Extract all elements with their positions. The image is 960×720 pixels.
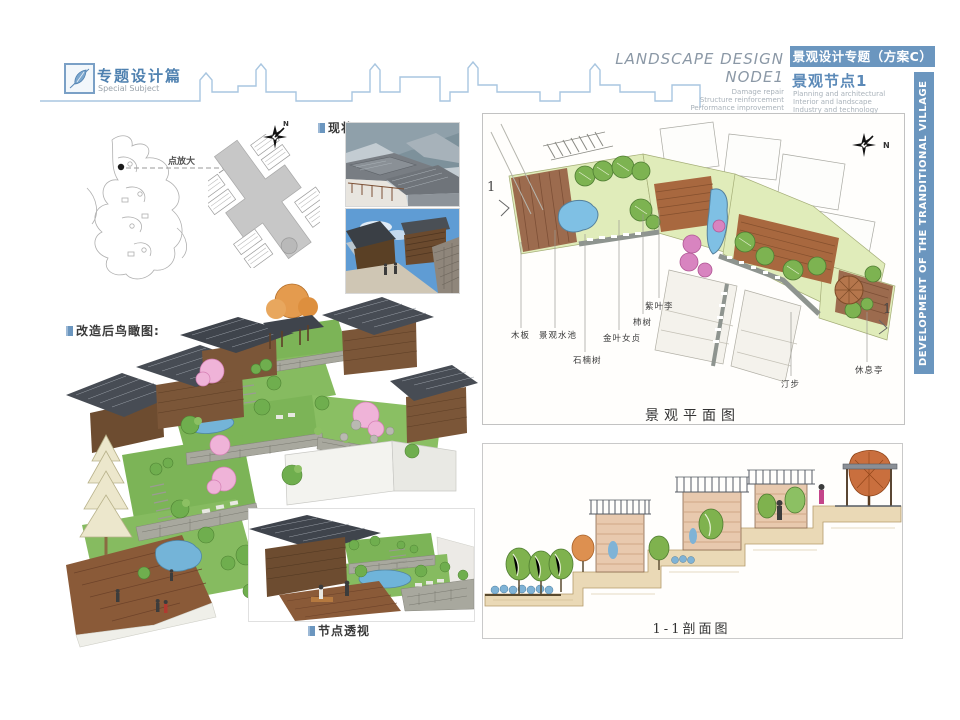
section-marker-1-left: 1 xyxy=(487,180,495,195)
side-banner: DEVELOPMENT OF THE TRANDITIONAL VILLAGE … xyxy=(914,72,934,374)
header-title-en: LANDSCAPE DESIGN xyxy=(615,50,784,68)
section-title: 1-1剖面图 xyxy=(482,618,901,637)
plan-label-wood: 木板 xyxy=(511,329,530,341)
banner-title: 景观设计专题（方案C） xyxy=(790,46,935,67)
village-outline-map xyxy=(82,128,207,286)
plan-label-privet: 金叶女贞 xyxy=(603,332,641,344)
node-sub-line: Planning and architectural xyxy=(793,90,885,98)
section-drawing xyxy=(483,444,902,636)
north-label: N xyxy=(283,120,289,128)
section-panel xyxy=(482,443,903,639)
plan-title: 景观平面图 xyxy=(482,405,903,425)
node-perspective-rendering xyxy=(248,508,475,622)
header-sub-en: Damage repair Structure reinforcement Pe… xyxy=(690,88,784,112)
skyline-graphic xyxy=(35,56,715,114)
presentation-board: 专题设计篇 Special Subject LANDSCAPE DESIGN N… xyxy=(0,0,960,720)
header-sub-line: Structure reinforcement xyxy=(690,96,784,104)
bullet-icon xyxy=(308,626,315,636)
header-sub-line: Performance improvement xyxy=(690,104,784,112)
side-banner-text: DEVELOPMENT OF THE TRANDITIONAL VILLAGE … xyxy=(914,72,934,374)
header-sub-line: Damage repair xyxy=(690,88,784,96)
plan-label-plum: 紫叶李 xyxy=(645,300,674,312)
enlarged-site-plan xyxy=(208,134,320,268)
plan-label-persimmon: 柿树 xyxy=(633,316,652,328)
node-sub-line: Interior and landscape xyxy=(793,98,885,106)
plan-north-label: N xyxy=(883,141,890,150)
inset-heading-text: 节点透视 xyxy=(318,624,370,638)
node-sub-en: Planning and architectural Interior and … xyxy=(793,90,885,114)
plan-label-rest-pavilion: 休息亭 xyxy=(855,364,884,376)
plan-label-photinia: 石楠树 xyxy=(573,354,602,366)
status-photo-rooftops xyxy=(345,122,460,207)
node-title: 景观节点1 xyxy=(792,70,867,91)
zoom-label: 点放大 xyxy=(168,154,195,167)
plan-panel: N 1 1 木板 景观水池 石楠树 金叶女贞 柿树 紫叶李 汀步 休息亭 xyxy=(482,113,905,425)
plan-label-pool: 景观水池 xyxy=(539,329,577,341)
landscape-plan-drawing: N xyxy=(483,114,904,423)
inset-heading: 节点透视 xyxy=(308,622,370,639)
bullet-icon xyxy=(318,123,325,133)
plan-label-stepping-stones: 汀步 xyxy=(781,378,800,390)
section-marker-1-right: 1 xyxy=(883,302,891,317)
header-node-en: NODE1 xyxy=(725,68,784,86)
